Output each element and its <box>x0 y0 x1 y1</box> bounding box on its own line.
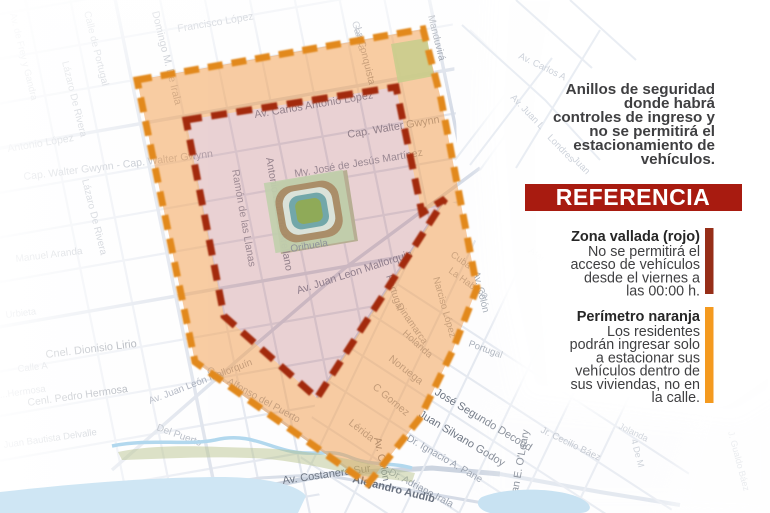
svg-text:vehículos.: vehículos. <box>641 151 715 168</box>
svg-text:REFERENCIA: REFERENCIA <box>556 184 711 210</box>
svg-text:las 00:00 h.: las 00:00 h. <box>626 284 700 300</box>
svg-text:la calle.: la calle. <box>652 390 700 406</box>
svg-text:Perímetro naranja: Perímetro naranja <box>577 309 701 325</box>
svg-text:Zona vallada (rojo): Zona vallada (rojo) <box>571 229 700 245</box>
